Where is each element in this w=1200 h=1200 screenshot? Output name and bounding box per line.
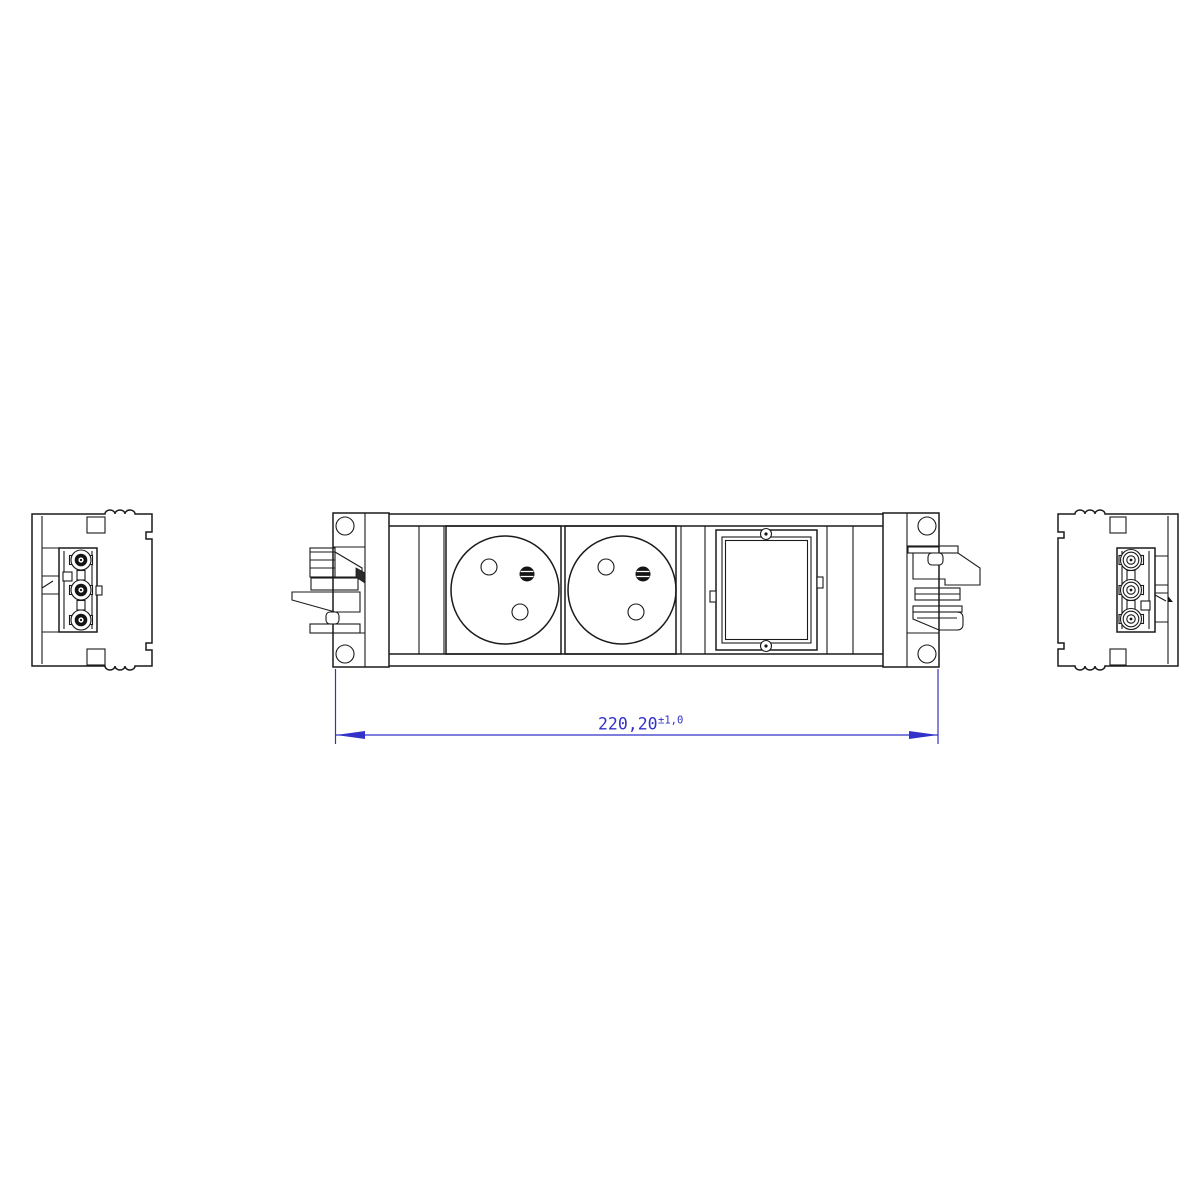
terminal-pin: [1130, 589, 1133, 592]
drawing-canvas: 220,20 ±1,0: [0, 0, 1200, 1200]
dimension-arrow-left: [336, 731, 365, 739]
mounting-hole: [918, 517, 936, 535]
terminal-pin: [80, 619, 82, 621]
earth-pin: [636, 567, 651, 582]
terminal-pin: [80, 559, 82, 561]
blank-plate-recess: [726, 541, 808, 640]
dimension-arrow-right: [909, 731, 938, 739]
module-divider-lines: [419, 526, 853, 654]
side-tab: [96, 586, 102, 595]
right-side-view: [1058, 510, 1178, 670]
socket-plate: [446, 526, 561, 654]
socket-recess: [568, 536, 676, 644]
terminal-pin: [1130, 618, 1133, 621]
latch-clip: [63, 572, 72, 581]
latch-hook: [326, 612, 339, 624]
module-screw-top: [761, 529, 772, 540]
dimension-value-text: 220,20: [598, 715, 658, 734]
mounting-hole: [336, 517, 354, 535]
socket-recess: [451, 536, 559, 644]
latch-hook: [928, 553, 943, 565]
blank-plate-outer: [716, 530, 817, 650]
screw-slot: [764, 644, 767, 647]
blank-module: [710, 529, 823, 652]
bottom-rail: [389, 654, 883, 666]
blank-plate-inner: [722, 537, 811, 643]
mounting-hole: [336, 645, 354, 663]
left-side-view: [32, 510, 152, 670]
terminal-link: [77, 571, 85, 581]
pin-hole-live: [481, 559, 497, 575]
socket-plate: [565, 526, 676, 654]
mounting-hole: [918, 645, 936, 663]
earth-pin: [520, 567, 535, 582]
socket-module-2: [565, 526, 676, 654]
front-view: [292, 513, 980, 667]
pin-hole-neutral: [512, 604, 528, 620]
side-clip: [710, 591, 716, 602]
socket-module-1: [446, 526, 561, 654]
mount-notch-bottom: [87, 649, 105, 665]
right-mounting-bracket: [883, 513, 939, 667]
pin-hole-neutral: [628, 604, 644, 620]
latch-clip: [1141, 601, 1150, 610]
bracket-plate: [883, 513, 939, 667]
terminal-link: [77, 601, 85, 611]
side-body-outline: [1058, 510, 1178, 670]
mount-notch-top: [87, 517, 105, 533]
side-clip: [817, 577, 823, 588]
terminal-pin: [1130, 559, 1133, 562]
mount-notch-bottom: [1110, 649, 1126, 665]
mount-notch-top: [1110, 517, 1126, 533]
module-screw-bottom: [761, 641, 772, 652]
terminal-link: [1127, 571, 1135, 581]
technical-drawing: 220,20 ±1,0: [0, 0, 1200, 1200]
pin-hole-live: [598, 559, 614, 575]
dimension-tolerance-text: ±1,0: [658, 715, 683, 727]
terminal-pin: [80, 589, 82, 591]
screw-slot: [764, 532, 767, 535]
dimension-annotation: 220,20 ±1,0: [336, 669, 939, 744]
top-rail: [389, 514, 883, 526]
latch-spring-lines: [310, 552, 335, 568]
